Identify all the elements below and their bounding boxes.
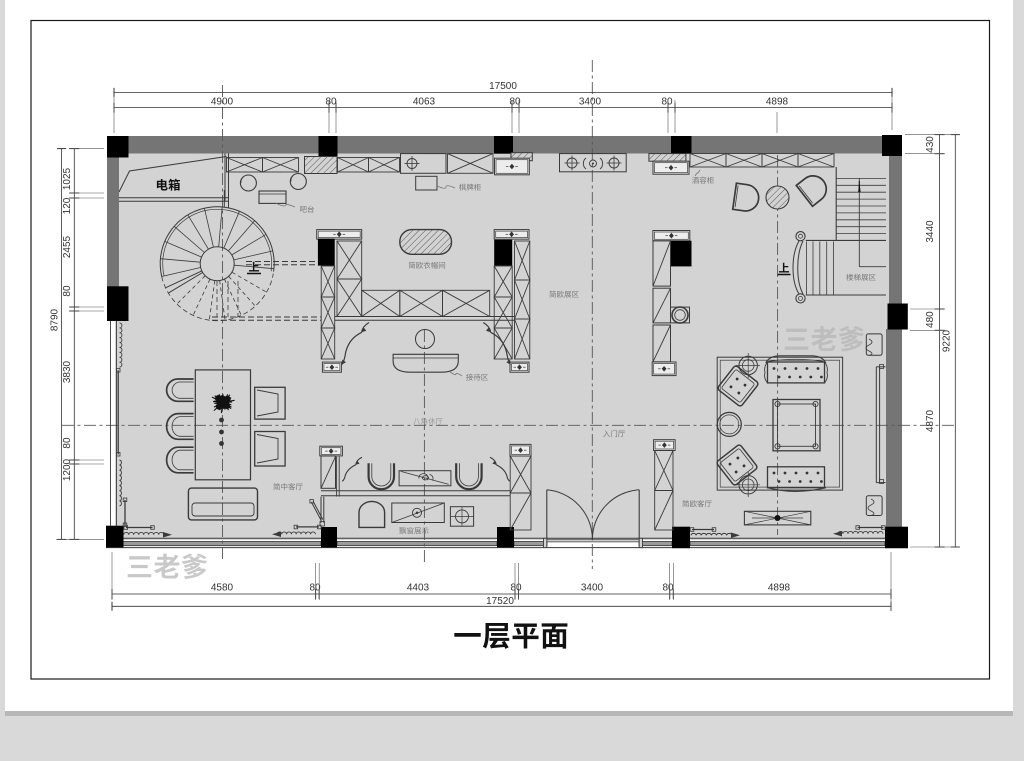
- svg-text:430: 430: [925, 136, 936, 153]
- svg-text:80: 80: [510, 583, 522, 594]
- svg-text:4870: 4870: [925, 409, 936, 432]
- svg-text:80: 80: [325, 97, 337, 108]
- svg-text:1200: 1200: [62, 458, 73, 481]
- svg-text:4403: 4403: [407, 583, 430, 594]
- svg-text:3400: 3400: [579, 97, 602, 108]
- svg-text:17500: 17500: [489, 81, 517, 92]
- svg-text:4900: 4900: [211, 97, 234, 108]
- svg-text:2455: 2455: [62, 235, 73, 258]
- svg-text:3830: 3830: [62, 360, 73, 383]
- svg-text:4898: 4898: [768, 583, 791, 594]
- svg-text:4580: 4580: [211, 583, 234, 594]
- svg-text:480: 480: [925, 311, 936, 328]
- svg-text:80: 80: [662, 583, 674, 594]
- svg-text:1025: 1025: [62, 167, 73, 190]
- svg-text:17520: 17520: [486, 596, 514, 607]
- svg-text:4063: 4063: [413, 97, 436, 108]
- svg-text:120: 120: [62, 197, 73, 214]
- svg-text:4898: 4898: [766, 97, 789, 108]
- svg-text:9220: 9220: [942, 329, 953, 352]
- svg-text:3440: 3440: [925, 220, 936, 243]
- svg-text:80: 80: [661, 97, 673, 108]
- svg-text:3400: 3400: [581, 583, 604, 594]
- svg-text:80: 80: [62, 437, 73, 449]
- svg-text:80: 80: [62, 285, 73, 297]
- svg-text:8790: 8790: [50, 308, 61, 331]
